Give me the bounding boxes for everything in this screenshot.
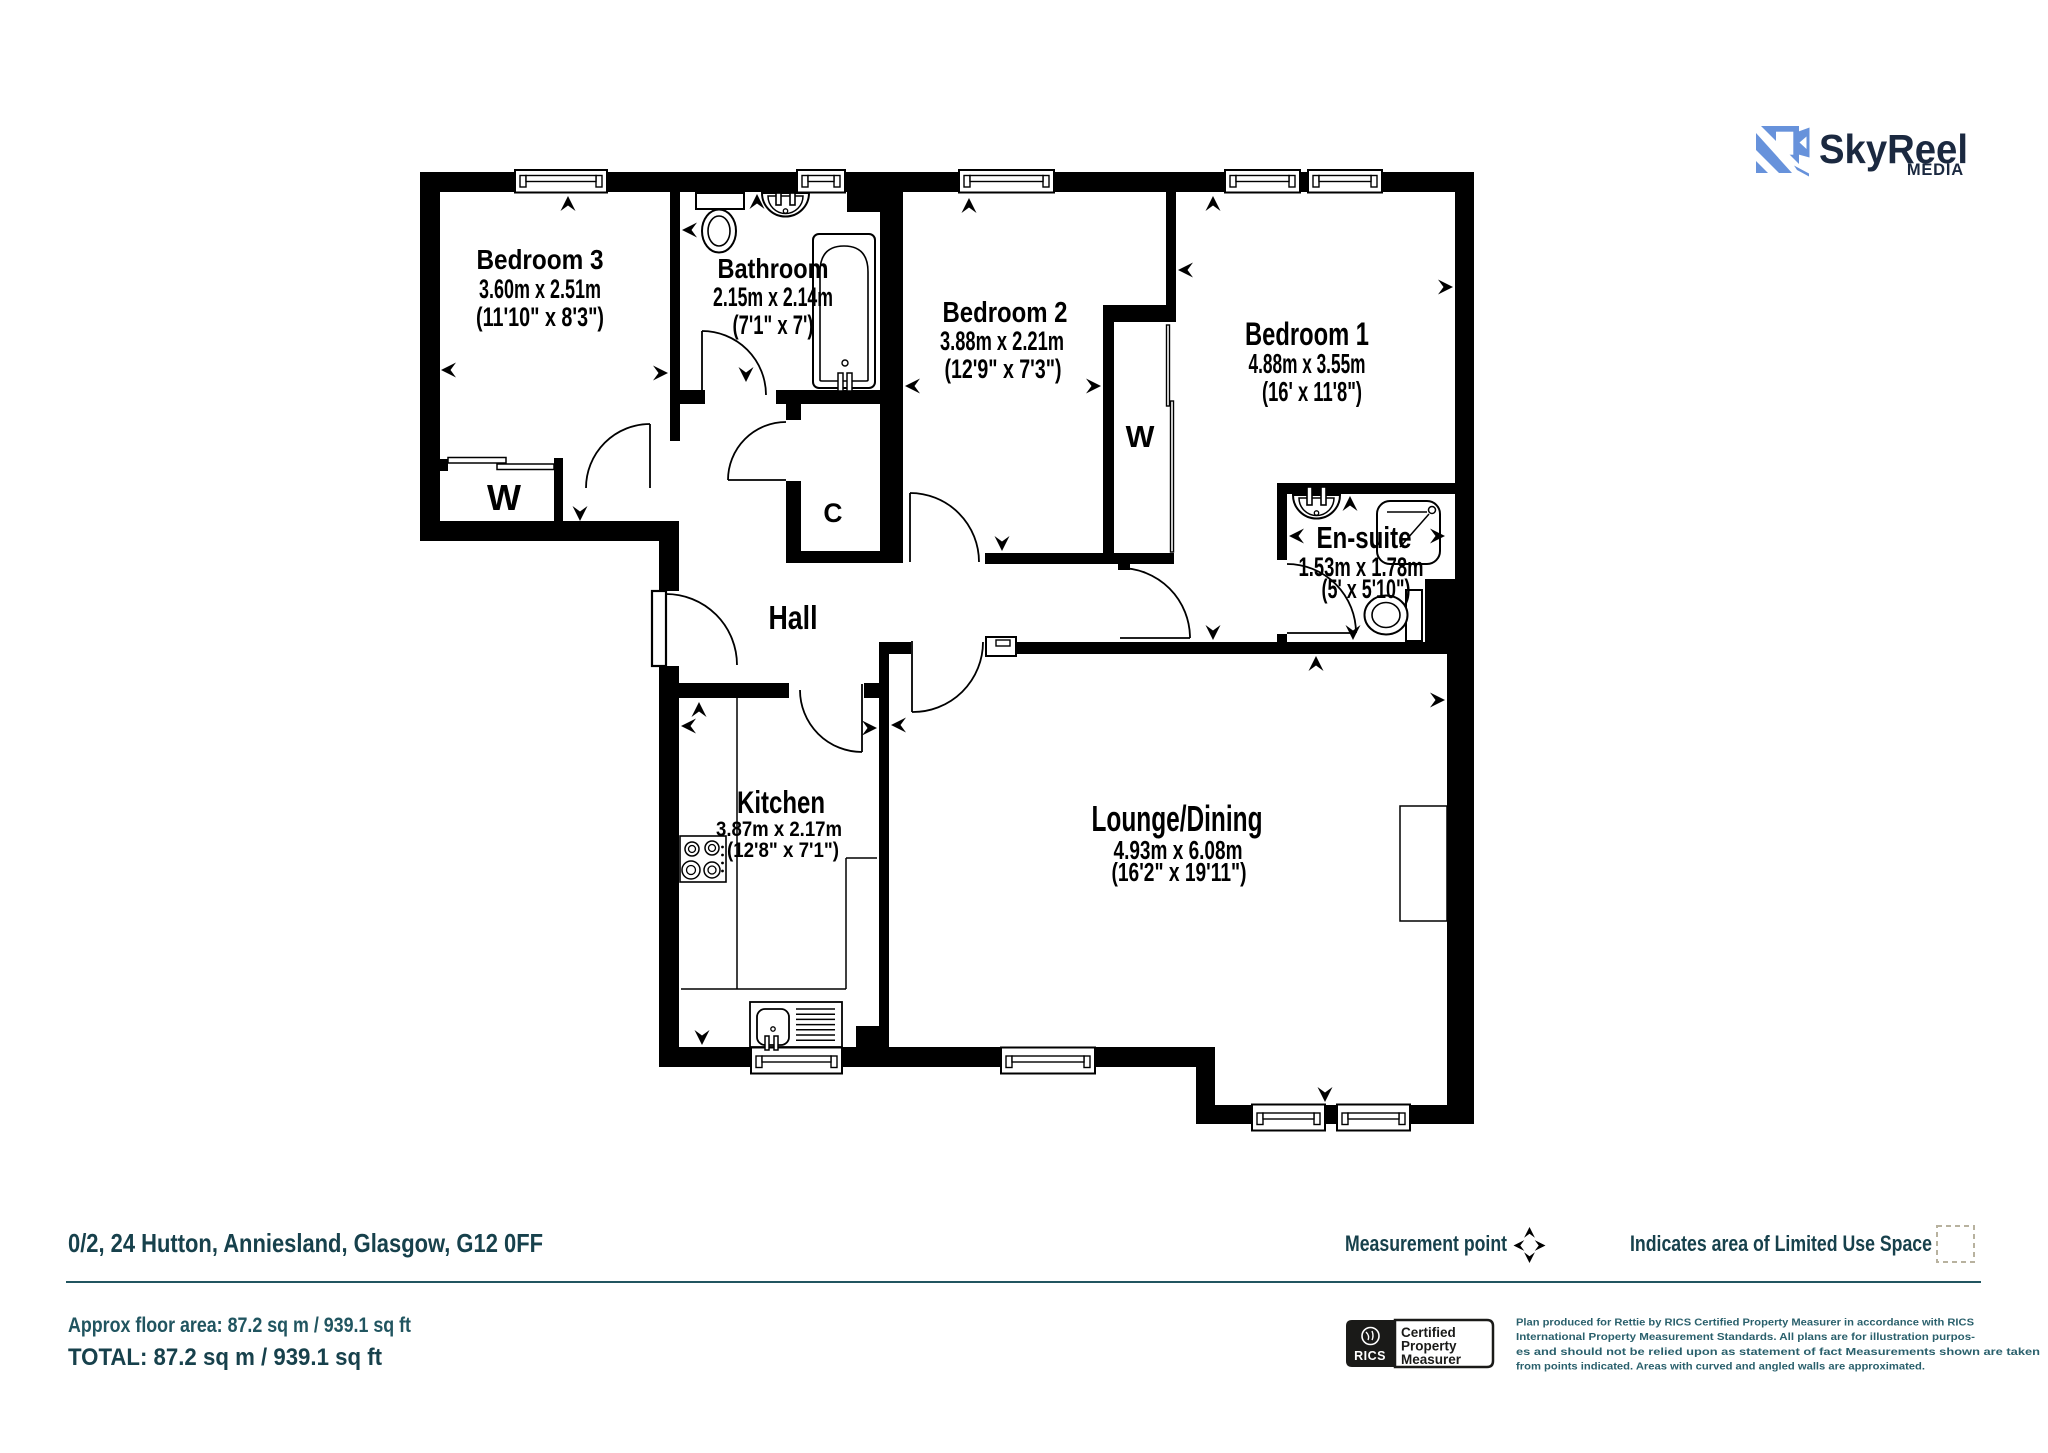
svg-text:Kitchen: Kitchen bbox=[737, 784, 825, 820]
svg-text:3.60m x 2.51m: 3.60m x 2.51m bbox=[479, 274, 601, 304]
svg-text:Approx floor area: 87.2 sq m /: Approx floor area: 87.2 sq m / 939.1 sq … bbox=[68, 1314, 411, 1337]
svg-text:RICS: RICS bbox=[1354, 1349, 1386, 1363]
svg-text:Bedroom 2: Bedroom 2 bbox=[943, 297, 1068, 329]
svg-text:from points indicated. Areas w: from points indicated. Areas with curved… bbox=[1516, 1361, 1925, 1373]
svg-text:Measurement point: Measurement point bbox=[1345, 1231, 1508, 1256]
svg-text:(12'9" x 7'3"): (12'9" x 7'3") bbox=[945, 354, 1062, 384]
svg-text:3.87m x 2.17m: 3.87m x 2.17m bbox=[716, 818, 842, 841]
svg-text:Measurer: Measurer bbox=[1401, 1352, 1462, 1367]
svg-text:MEDIA: MEDIA bbox=[1907, 161, 1964, 179]
svg-text:(5' x 5'10"): (5' x 5'10") bbox=[1322, 574, 1411, 604]
svg-text:Hall: Hall bbox=[769, 599, 818, 636]
svg-text:Bedroom 1: Bedroom 1 bbox=[1245, 316, 1369, 352]
svg-text:TOTAL: 87.2 sq m / 939.1 sq ft: TOTAL: 87.2 sq m / 939.1 sq ft bbox=[68, 1344, 382, 1371]
svg-text:C: C bbox=[823, 498, 842, 528]
svg-text:International Property Measur: International Property Measurement Stand… bbox=[1516, 1331, 1976, 1343]
svg-text:(11'10" x 8'3"): (11'10" x 8'3") bbox=[476, 302, 604, 332]
svg-text:(12'8" x 7'1"): (12'8" x 7'1") bbox=[727, 839, 839, 862]
svg-text:2.15m x 2.14m: 2.15m x 2.14m bbox=[713, 282, 833, 312]
svg-text:0/2, 24 Hutton, Anniesland, Gl: 0/2, 24 Hutton, Anniesland, Glasgow, G12… bbox=[68, 1228, 543, 1258]
svg-text:(16'2" x 19'11"): (16'2" x 19'11") bbox=[1112, 859, 1247, 887]
svg-text:(7'1" x 7'): (7'1" x 7') bbox=[733, 310, 814, 340]
svg-text:3.88m x 2.21m: 3.88m x 2.21m bbox=[940, 326, 1064, 356]
svg-text:es and should not be relied up: es and should not be relied upon as stat… bbox=[1516, 1346, 2040, 1358]
svg-text:4.88m x 3.55m: 4.88m x 3.55m bbox=[1249, 348, 1366, 379]
svg-text:W: W bbox=[1126, 420, 1155, 454]
svg-text:Bedroom 3: Bedroom 3 bbox=[477, 244, 604, 275]
svg-text:En-suite: En-suite bbox=[1317, 520, 1412, 555]
svg-text:Indicates area of Limited Use: Indicates area of Limited Use Space bbox=[1630, 1231, 1932, 1256]
svg-text:Lounge/Dining: Lounge/Dining bbox=[1092, 798, 1263, 839]
svg-text:Plan produced for Rettie by RI: Plan produced for Rettie by RICS Certifi… bbox=[1516, 1317, 1974, 1329]
svg-text:Bathroom: Bathroom bbox=[718, 253, 829, 284]
svg-text:W: W bbox=[487, 477, 521, 518]
svg-text:(16' x 11'8"): (16' x 11'8") bbox=[1262, 376, 1362, 407]
